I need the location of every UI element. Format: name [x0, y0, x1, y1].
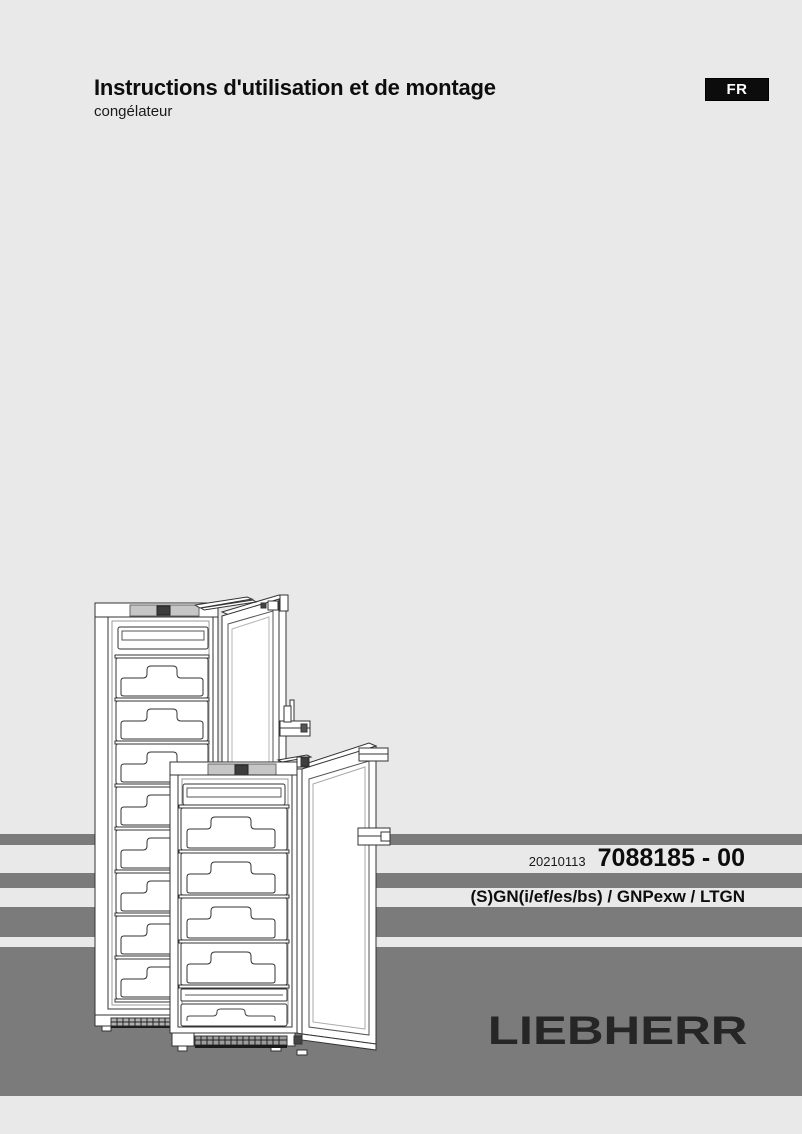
freezer-illustration: [75, 585, 445, 1075]
freezer-front-door: [297, 743, 390, 1055]
language-badge-label: FR: [727, 81, 748, 98]
freezer-front-display: [235, 765, 248, 775]
doc-number: 7088185 - 00: [598, 844, 745, 873]
page-title: Instructions d'utilisation et de montage: [94, 75, 496, 101]
page-subtitle: congélateur: [94, 103, 172, 120]
doc-number-row: 20210113 7088185 - 00: [529, 844, 745, 873]
manual-cover-page: { "document": { "title": "Instructions d…: [0, 0, 802, 1134]
model-line: (S)GN(i/ef/es/bs) / GNPexw / LTGN: [470, 887, 745, 907]
liebherr-logo: LIEBHERR: [487, 1009, 747, 1053]
date-code: 20210113: [529, 854, 586, 873]
freezer-back-display: [157, 606, 170, 615]
freezer-front: [170, 743, 390, 1055]
freezer-front-drawers: [179, 805, 289, 1026]
language-badge: FR: [705, 78, 769, 101]
freezer-back-vent-grille: [111, 1018, 175, 1028]
freezer-front-vent-grille: [195, 1036, 287, 1048]
